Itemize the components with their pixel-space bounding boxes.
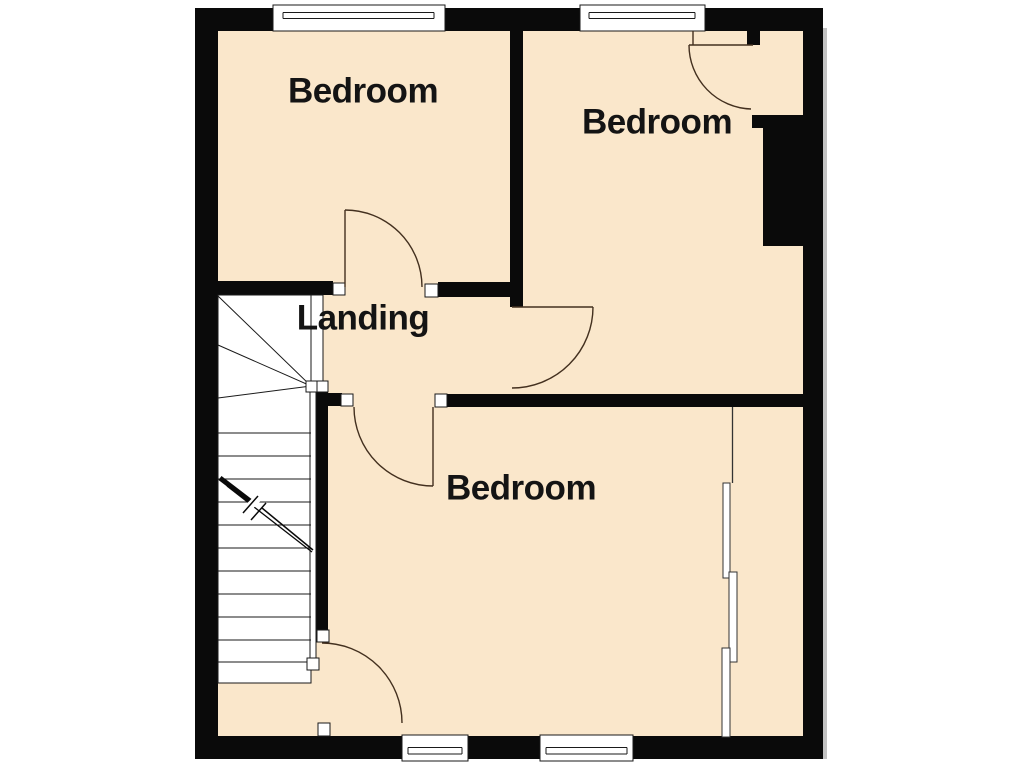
wall-landing-stub	[328, 393, 342, 406]
doorjamb-cap	[341, 394, 353, 406]
banister-newel-cap	[306, 381, 317, 392]
room-label-bedroom-top-right: Bedroom	[582, 105, 732, 140]
doorjamb-cap	[425, 284, 438, 297]
wall-bedroomTL-landing	[218, 281, 333, 295]
partition-panel	[723, 483, 730, 578]
window-icon-top-right	[580, 5, 705, 31]
doorjamb-cap	[435, 394, 447, 407]
wall-bottom-2	[468, 736, 540, 759]
room-label-landing: Landing	[297, 301, 430, 336]
window-icon-bottom-right	[540, 735, 633, 761]
cupboard-door-stub	[747, 30, 760, 45]
doorjamb-cap	[318, 723, 330, 736]
floor-plan-drawing	[0, 0, 1024, 768]
staircase	[218, 295, 323, 683]
wall-divider-top-bedrooms	[510, 30, 523, 307]
wall-bedroomTR-bedroomB	[447, 394, 803, 407]
room-label-bedroom-top-left: Bedroom	[288, 74, 438, 109]
wall-top-2	[445, 8, 580, 31]
wall-landing-bedroomTR	[438, 282, 510, 297]
partition-panel	[722, 648, 730, 737]
banister-newel-cap	[307, 658, 319, 670]
wall-left	[195, 8, 218, 759]
wall-stairs-bedroomB	[315, 392, 328, 630]
room-label-bedroom-bottom: Bedroom	[446, 471, 596, 506]
window-icon-bottom-left	[402, 735, 468, 761]
chimney-breast-top	[752, 115, 803, 128]
chimney-breast	[763, 128, 803, 246]
banister-newel-cap	[317, 381, 328, 392]
plan-edge-shadow	[823, 28, 827, 759]
floor-plan: Bedroom Bedroom Landing Bedroom	[0, 0, 1024, 768]
wall-bottom-1	[195, 736, 402, 759]
doorjamb-cap	[333, 283, 345, 295]
doorjamb-cap	[317, 630, 329, 642]
wall-right	[803, 8, 823, 759]
wall-bottom-3	[633, 736, 823, 759]
window-icon-top-left	[273, 5, 445, 31]
